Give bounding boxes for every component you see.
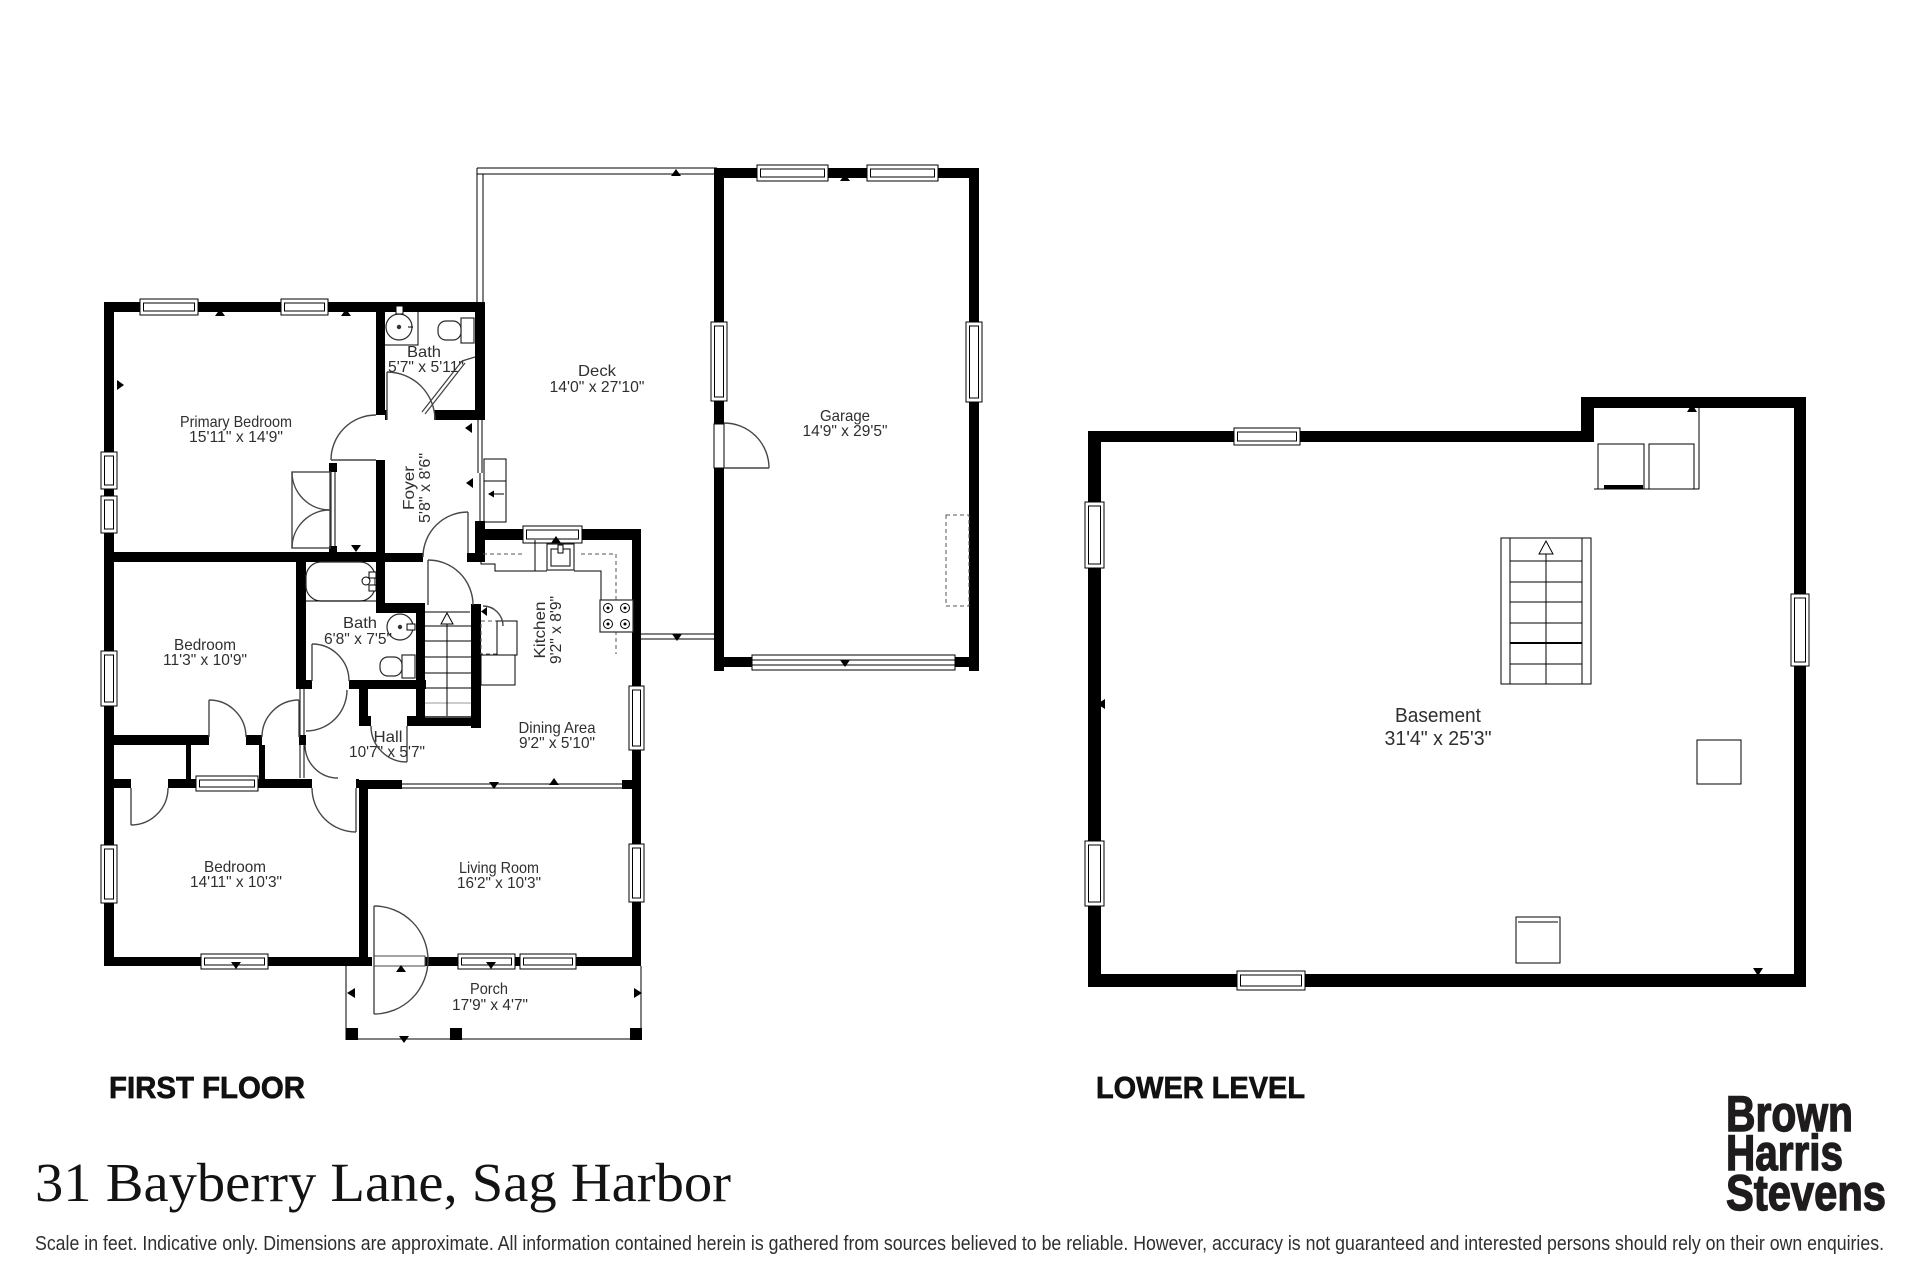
svg-text:6'8" x 7'5": 6'8" x 7'5" bbox=[324, 631, 392, 648]
svg-text:5'8" x 8'6": 5'8" x 8'6" bbox=[417, 453, 434, 523]
svg-text:17'9" x 4'7": 17'9" x 4'7" bbox=[452, 997, 528, 1014]
svg-text:FIRST FLOOR: FIRST FLOOR bbox=[109, 1070, 305, 1105]
svg-text:9'2" x 8'9": 9'2" x 8'9" bbox=[548, 596, 565, 664]
svg-text:15'11" x 14'9": 15'11" x 14'9" bbox=[189, 429, 283, 446]
svg-text:Basement: Basement bbox=[1395, 705, 1481, 727]
svg-text:Foyer: Foyer bbox=[401, 465, 418, 510]
svg-text:10'7" x 5'7": 10'7" x 5'7" bbox=[349, 744, 425, 761]
svg-text:LOWER LEVEL: LOWER LEVEL bbox=[1096, 1070, 1305, 1105]
svg-text:Porch: Porch bbox=[470, 981, 508, 998]
svg-text:Deck: Deck bbox=[578, 363, 617, 380]
svg-text:16'2" x 10'3": 16'2" x 10'3" bbox=[457, 875, 541, 892]
svg-text:11'3" x 10'9": 11'3" x 10'9" bbox=[163, 652, 247, 669]
svg-text:Kitchen: Kitchen bbox=[532, 602, 549, 659]
svg-text:Stevens: Stevens bbox=[1726, 1165, 1886, 1221]
svg-text:14'0" x 27'10": 14'0" x 27'10" bbox=[550, 379, 645, 396]
svg-text:31 Bayberry Lane, Sag Harbor: 31 Bayberry Lane, Sag Harbor bbox=[35, 1152, 731, 1213]
svg-text:Scale in feet. Indicative only: Scale in feet. Indicative only. Dimensio… bbox=[35, 1233, 1884, 1255]
svg-text:5'7" x 5'11": 5'7" x 5'11" bbox=[388, 359, 464, 376]
svg-text:14'9" x 29'5": 14'9" x 29'5" bbox=[803, 423, 888, 440]
svg-text:14'11" x 10'3": 14'11" x 10'3" bbox=[190, 874, 282, 891]
svg-text:Bath: Bath bbox=[343, 615, 377, 632]
svg-text:9'2" x 5'10": 9'2" x 5'10" bbox=[519, 735, 595, 752]
svg-text:31'4" x 25'3": 31'4" x 25'3" bbox=[1385, 728, 1492, 750]
